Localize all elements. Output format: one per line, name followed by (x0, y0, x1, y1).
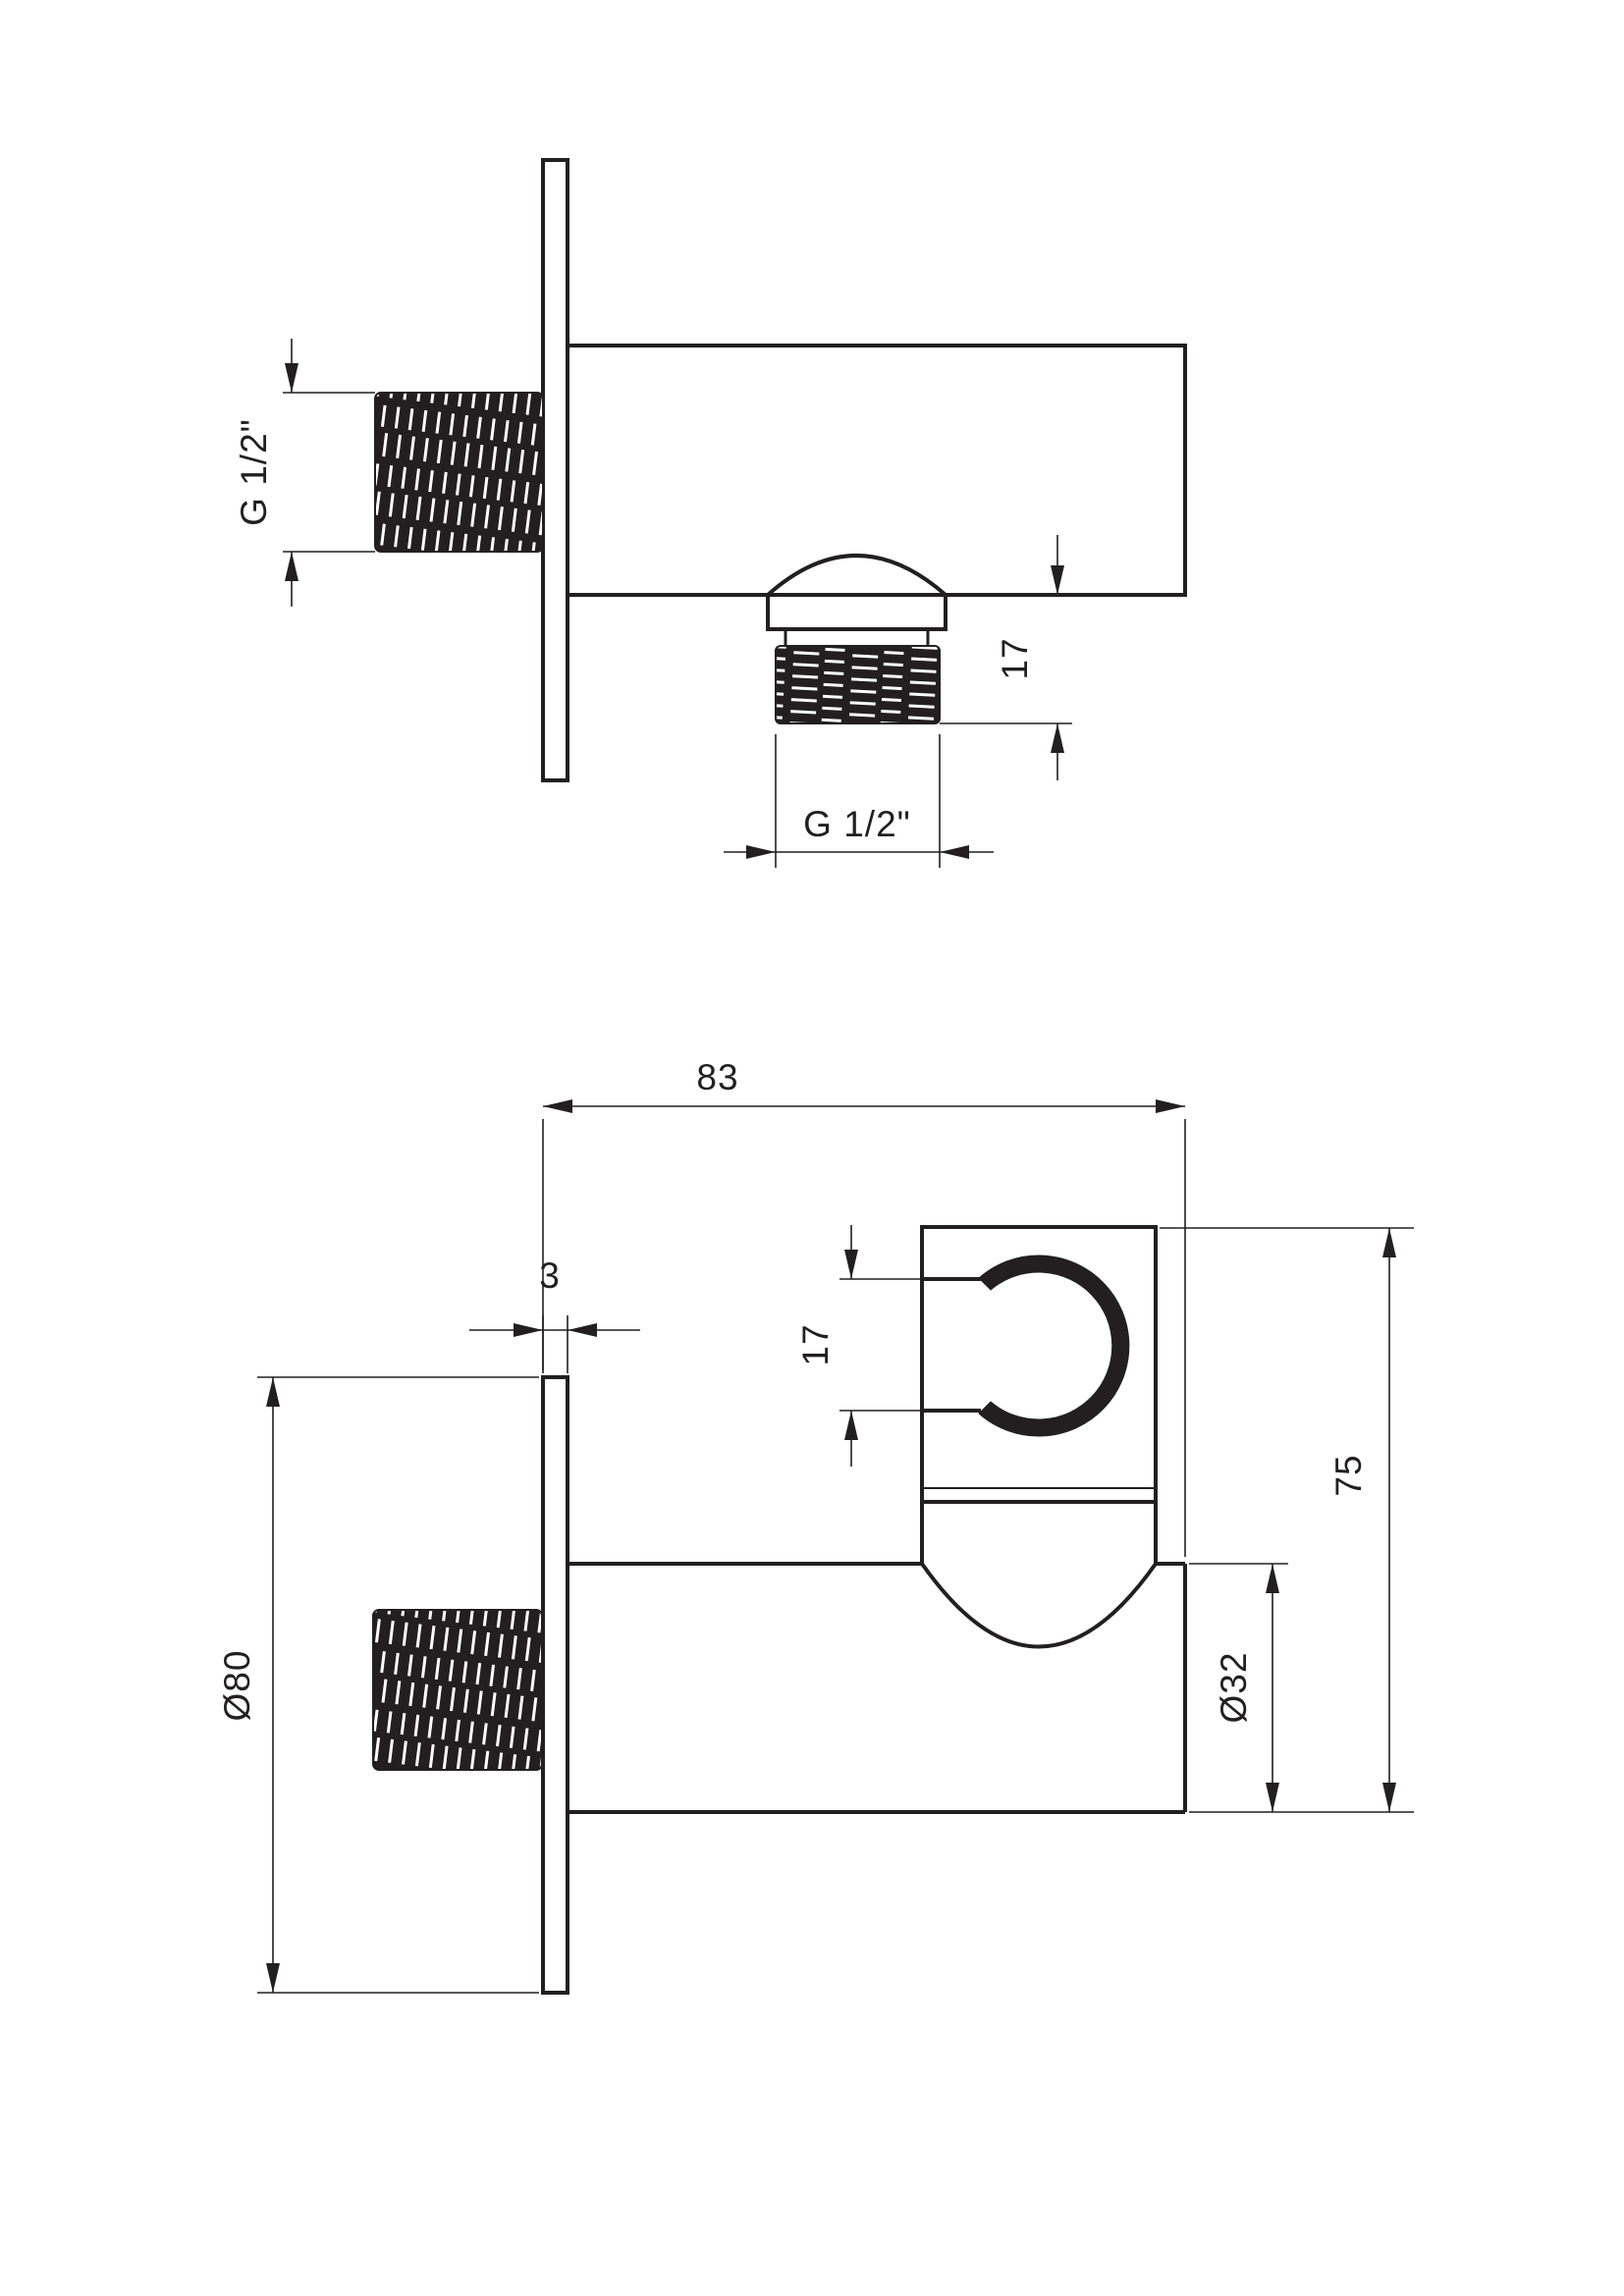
dim-plate-thickness: 3 (469, 1255, 640, 1373)
inlet-thread-label: G 1/2" (234, 418, 274, 526)
arrowhead (266, 1377, 280, 1407)
outlet-height-label: 17 (995, 637, 1035, 679)
plate-diameter-label: Ø80 (217, 1650, 257, 1722)
technical-drawing: G 1/2" 17 G 1/2" (0, 0, 1624, 2296)
plate-thickness-label: 3 (539, 1255, 561, 1296)
bottom-wall-plate (543, 1377, 568, 1993)
dim-inlet-thread: G 1/2" (234, 339, 375, 607)
arrowhead (844, 1411, 858, 1440)
overall-height-label: 75 (1328, 1454, 1369, 1496)
dim-overall-height: 75 (1160, 1228, 1414, 1812)
arrowhead (940, 845, 969, 859)
top-inlet-thread (375, 393, 543, 552)
bottom-view: 83 3 17 (217, 1057, 1414, 1993)
arrowhead (568, 1323, 597, 1337)
arrowhead (1156, 1099, 1185, 1113)
cone-fillet-curve (922, 1564, 1156, 1647)
arrowhead (1266, 1564, 1279, 1593)
arrowhead (1266, 1783, 1279, 1812)
top-wall-plate (543, 160, 568, 780)
dim-holder-slot: 17 (795, 1225, 924, 1467)
holder-bracket (922, 1227, 1156, 1564)
top-view: G 1/2" 17 G 1/2" (234, 160, 1185, 868)
arrowhead (746, 845, 776, 859)
arrowhead (285, 552, 298, 581)
arrowhead (1051, 723, 1064, 753)
arrowhead (266, 1963, 280, 1993)
top-outlet-thread (776, 646, 940, 723)
arrowhead (543, 1099, 572, 1113)
arrowhead (285, 363, 298, 393)
outlet-thread-label: G 1/2" (803, 804, 911, 844)
arrowhead (1382, 1783, 1396, 1812)
arrowhead (844, 1250, 858, 1279)
holder-slot-label: 17 (795, 1323, 836, 1365)
outlet-dome-base (768, 595, 946, 629)
dim-outlet-thread: G 1/2" (724, 734, 994, 868)
overall-depth-label: 83 (696, 1057, 738, 1097)
arrowhead (1382, 1228, 1396, 1257)
arrowhead (514, 1323, 543, 1337)
drawing-sheet: G 1/2" 17 G 1/2" (0, 0, 1624, 2296)
dim-body-diameter: Ø32 (1189, 1564, 1414, 1812)
pipe-body (568, 1564, 1185, 1812)
bottom-inlet-thread (373, 1610, 542, 1770)
body-diameter-label: Ø32 (1214, 1652, 1254, 1724)
